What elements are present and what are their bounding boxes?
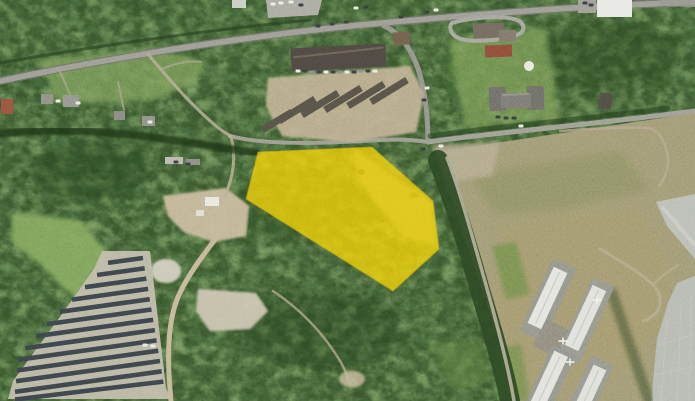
scene-root — [0, 0, 695, 401]
aerial-map-image — [0, 0, 695, 401]
satellite-photo — [0, 0, 695, 401]
photo-grain — [0, 0, 695, 401]
